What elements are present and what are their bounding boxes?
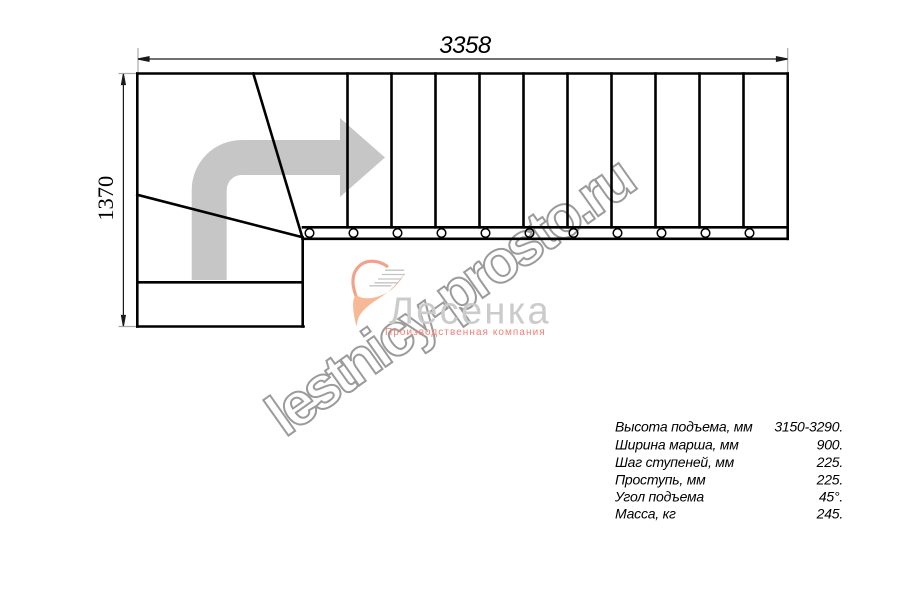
svg-text:Шаг ступеней, мм: Шаг ступеней, мм (615, 454, 735, 470)
svg-text:225.: 225. (816, 454, 843, 470)
svg-text:3358: 3358 (439, 32, 492, 59)
svg-text:1370: 1370 (93, 176, 118, 221)
svg-text:Проступь, мм: Проступь, мм (615, 471, 706, 487)
svg-text:3150-3290.: 3150-3290. (774, 418, 843, 434)
svg-text:Высота подъема, мм: Высота подъема, мм (615, 418, 753, 434)
svg-text:900.: 900. (817, 437, 843, 453)
svg-text:225.: 225. (816, 471, 843, 487)
svg-text:Производственная компания: Производственная компания (385, 327, 546, 338)
svg-text:Угол подъема: Угол подъема (614, 489, 704, 505)
svg-text:Ширина марша, мм: Ширина марша, мм (615, 437, 739, 453)
svg-text:Масса, кг: Масса, кг (615, 506, 676, 522)
svg-text:245.: 245. (816, 506, 843, 522)
svg-text:45°.: 45°. (819, 489, 843, 505)
